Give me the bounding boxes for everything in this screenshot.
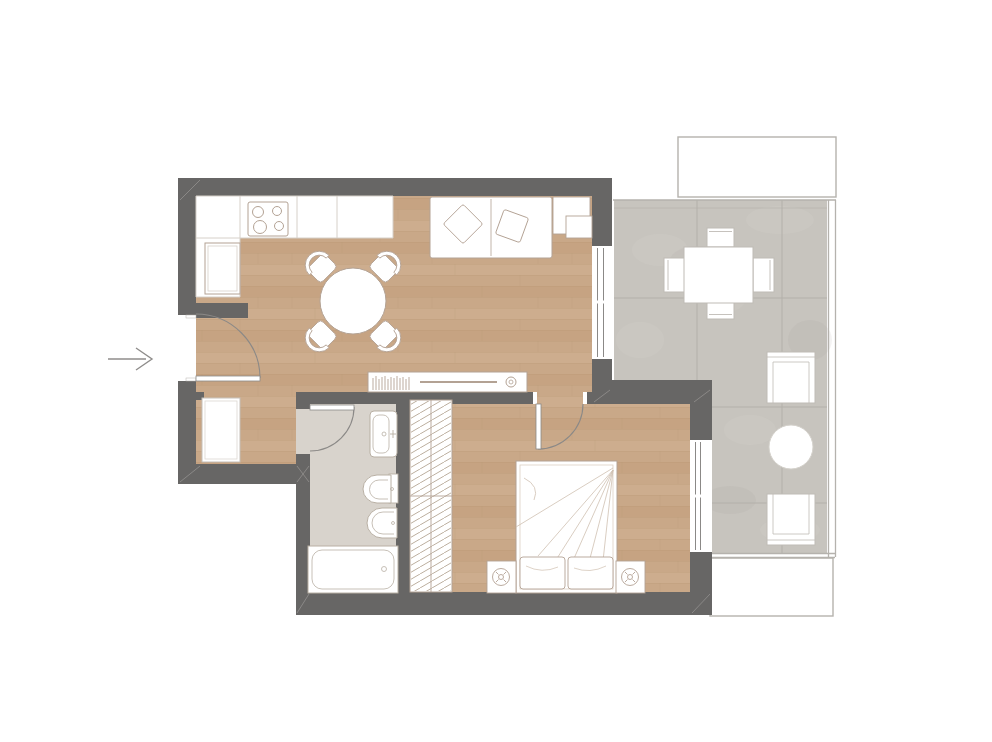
nightstand-left [487,561,516,593]
lounge-chair-body [767,494,815,545]
window-to-terrace [690,440,712,552]
lounge-chair-lower [767,494,815,545]
hall-closet [202,398,240,462]
sliding-glass-door [592,246,612,359]
lounge-chair-body [767,352,815,403]
bathroom-doorway-floor [296,409,310,454]
bathtub-rim [308,546,398,593]
wall-bedroom-east-upper [690,404,712,442]
wall-bottom [296,592,712,615]
outdoor-chair-left [664,258,685,292]
wall-bedroom-east-lower [690,550,712,592]
entry-opening [178,315,196,381]
entry-arrow [108,348,152,370]
bathtub [308,546,398,593]
door-leaf [536,404,541,449]
tall-cabinet-fridge [205,243,240,294]
door-jamb [533,392,537,404]
chair-seat [707,228,734,247]
wall-top [178,178,612,196]
pillow [520,557,565,589]
round-side-table [769,425,813,469]
door-jamb [583,392,587,404]
round-dining-table [320,268,386,334]
lamp-center [628,575,633,580]
wall-living-east-upper [592,196,612,248]
cooktop-four-burners [248,202,288,236]
wall-hall-bottom [178,464,308,484]
outdoor-dining-table [684,247,753,303]
lamp-center [499,575,504,580]
pillow [568,557,613,589]
outdoor-chair-right [753,258,774,292]
cooktop-body [248,202,288,236]
hallway [202,398,240,462]
washbasin [370,411,397,457]
awning-outline-bottom [710,558,833,616]
door-leaf [196,376,260,381]
chair-seat [707,302,734,319]
fridge-body [205,243,240,294]
door-jamb [186,378,196,381]
door-jamb [186,315,196,318]
lounge-chair-upper [767,352,815,403]
door-leaf [310,405,354,410]
double-bed [516,461,617,593]
wall-living-east-lower [592,357,612,392]
tile-blotch [746,206,814,234]
toilet [363,474,398,503]
nightstand-right [616,561,645,593]
bedroom-doorway-floor [537,392,583,404]
side-table-small [566,216,592,238]
tile-blotch [724,415,776,445]
chair-seat [664,258,685,292]
tile-blotch [616,322,664,358]
chair-seat [753,258,774,292]
bidet-bowl [367,508,397,538]
outdoor-chair-top [707,228,734,247]
wall-closet-stub [178,392,204,400]
awning-outline-top [678,137,836,197]
hatched-wardrobe [410,400,452,592]
outdoor-chair-bottom [707,302,734,319]
tv-sideboard [368,372,527,392]
floor-plan-canvas [0,0,992,742]
floor-plan-drawing [0,0,992,742]
bidet [367,508,397,538]
wall-terrace-south [612,380,712,404]
